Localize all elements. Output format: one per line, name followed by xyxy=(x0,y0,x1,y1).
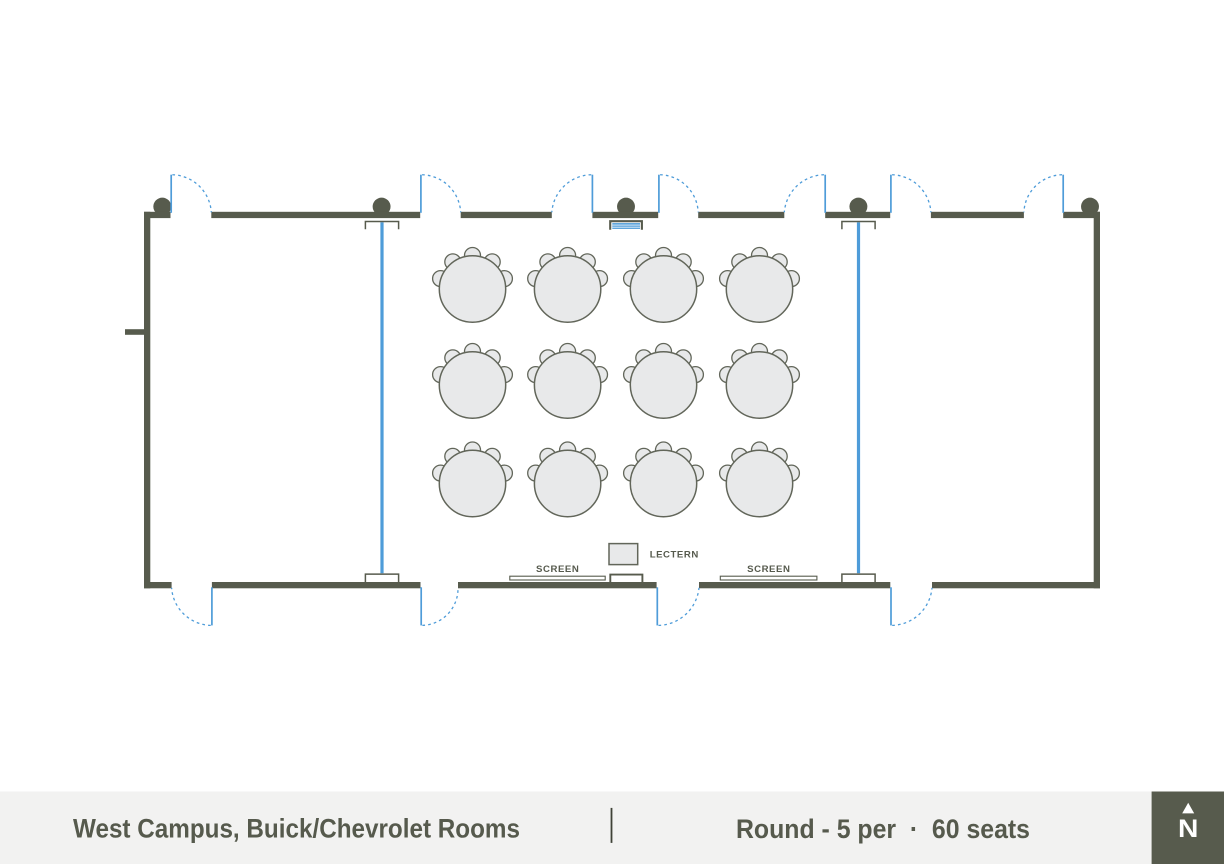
svg-text:SCREEN: SCREEN xyxy=(747,564,790,575)
svg-text:Round - 5 per · 60 seats: Round - 5 per · 60 seats xyxy=(736,814,1030,844)
svg-text:N: N xyxy=(1178,815,1198,843)
svg-text:SCREEN: SCREEN xyxy=(536,564,579,575)
svg-text:West Campus, Buick/Chevrolet R: West Campus, Buick/Chevrolet Rooms xyxy=(73,814,520,844)
svg-text:LECTERN: LECTERN xyxy=(650,550,699,561)
